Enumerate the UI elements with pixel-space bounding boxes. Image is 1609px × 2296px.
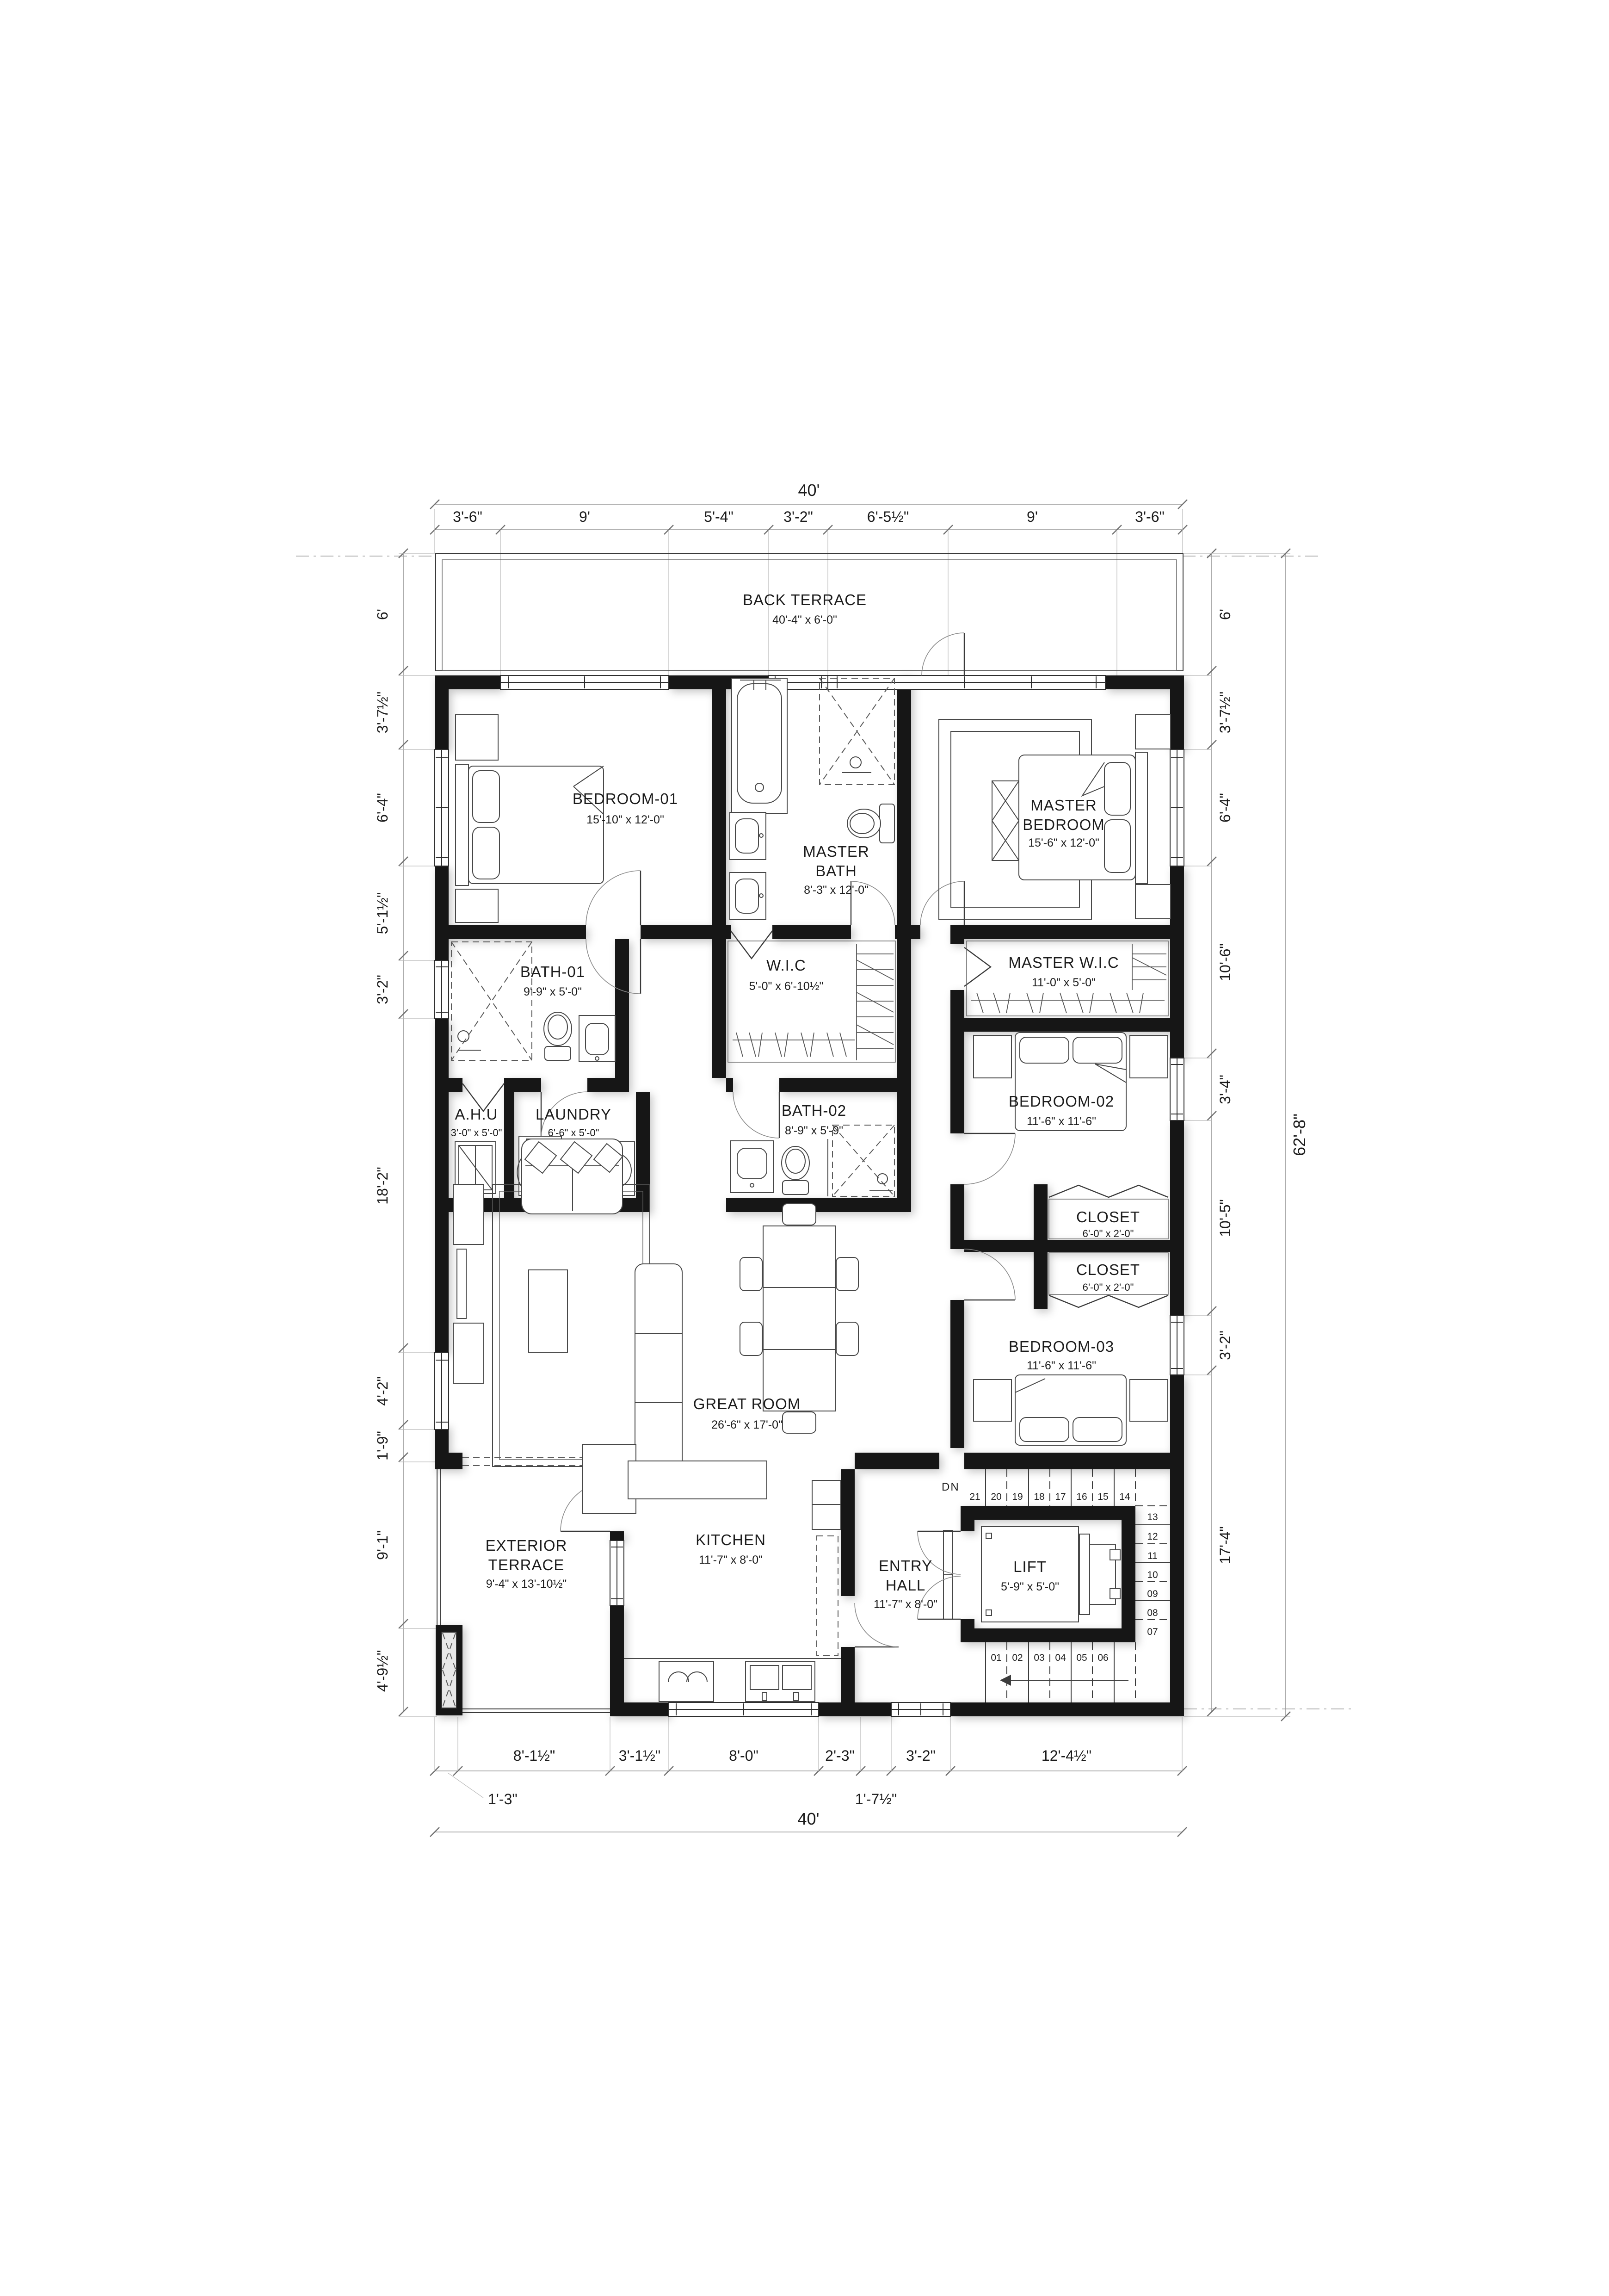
svg-text:LAUNDRY: LAUNDRY	[536, 1106, 611, 1123]
dim-bottom-overall: 40'	[798, 1809, 820, 1828]
dim-left-4: 3'-2"	[374, 975, 391, 1004]
window-bedroom01-left	[435, 749, 449, 866]
dim-bottom-1: 3'-1½"	[619, 1747, 660, 1764]
dim-left-2: 6'-4"	[374, 793, 391, 823]
dim-right-5: 10'-5"	[1217, 1199, 1233, 1237]
front-door	[891, 1702, 950, 1716]
svg-text:MASTER W.I.C: MASTER W.I.C	[1008, 954, 1119, 971]
dim-left-6: 4'-2"	[374, 1376, 391, 1406]
room-label-master-wic: MASTER W.I.C 11'-0" x 5'-0"	[1008, 954, 1119, 989]
room-label-bath02: BATH-02 8'-9" x 5'-9"	[782, 1102, 846, 1137]
svg-text:11'-7" x 8'-0": 11'-7" x 8'-0"	[874, 1598, 937, 1611]
svg-text:CLOSET: CLOSET	[1076, 1261, 1140, 1278]
door-bath01	[586, 939, 641, 994]
stair-num-04: 04	[1055, 1652, 1066, 1663]
stair-num-03: 03	[1034, 1652, 1044, 1663]
closet-top-bifold	[1049, 1185, 1168, 1197]
dim-bottom-4: 3'-2"	[906, 1747, 936, 1764]
bed-bedroom03	[974, 1375, 1168, 1445]
dim-bottom-3: 2'-3"	[825, 1747, 855, 1764]
svg-text:GREAT ROOM: GREAT ROOM	[693, 1395, 801, 1412]
stair-num-21: 21	[969, 1491, 980, 1502]
svg-text:11'-6" x 11'-6": 11'-6" x 11'-6"	[1027, 1115, 1096, 1128]
kitchen-upper-cabinets	[817, 1536, 838, 1655]
svg-text:CLOSET: CLOSET	[1076, 1208, 1140, 1225]
room-label-back-terrace: BACK TERRACE 40'-4" x 6'-0"	[743, 591, 867, 626]
bathtub-master	[732, 678, 787, 813]
stair-num-10: 10	[1147, 1570, 1158, 1580]
svg-text:BATH: BATH	[815, 862, 857, 879]
dim-bottom-leader-left: 1'-3"	[488, 1791, 518, 1807]
svg-text:6'-0" x 2'-0": 6'-0" x 2'-0"	[1083, 1228, 1134, 1239]
dim-right-overall: 62'-8"	[1290, 1114, 1309, 1156]
leader-line-left	[448, 1773, 483, 1798]
dim-left-9: 4'-9½"	[374, 1650, 391, 1692]
svg-text:5'-9" x 5'-0": 5'-9" x 5'-0"	[1001, 1580, 1059, 1593]
lift-car	[981, 1527, 1120, 1622]
stair-num-17: 17	[1055, 1491, 1066, 1502]
back-terrace-outline	[436, 553, 1183, 671]
svg-text:EXTERIOR: EXTERIOR	[486, 1537, 567, 1554]
dim-right-1: 3'-7½"	[1217, 692, 1233, 733]
dim-top-overall: 40'	[798, 481, 820, 500]
vanity-bath02	[731, 1141, 773, 1193]
dim-left-7: 1'-9"	[374, 1431, 391, 1461]
dim-bottom-5: 12'-4½"	[1042, 1747, 1091, 1764]
stair-num-18: 18	[1034, 1491, 1044, 1502]
window-greatroom-left	[435, 1353, 449, 1430]
dim-left-8: 9'-1"	[374, 1530, 391, 1560]
svg-text:BEDROOM-02: BEDROOM-02	[1009, 1093, 1114, 1110]
toilet-master	[847, 804, 894, 843]
room-label-exterior-terrace: EXTERIOR TERRACE 9'-4" x 13'-10½"	[486, 1537, 567, 1590]
svg-text:26'-6" x 17'-0": 26'-6" x 17'-0"	[711, 1418, 783, 1431]
svg-text:A.H.U: A.H.U	[455, 1106, 498, 1123]
svg-text:8'-3" x 12'-0": 8'-3" x 12'-0"	[804, 884, 869, 897]
toilet-bath02	[782, 1146, 809, 1194]
dim-top-6: 3'-6"	[1135, 508, 1165, 525]
stair-num-02: 02	[1012, 1652, 1023, 1663]
dim-right-2: 6'-4"	[1217, 793, 1233, 823]
kitchen-fixtures	[624, 1461, 841, 1702]
stair-num-11: 11	[1147, 1551, 1158, 1561]
planter-inner	[442, 1632, 456, 1708]
slider-master-bedroom-top	[828, 675, 1105, 689]
vanity-master-2	[730, 873, 766, 920]
window-kitchen-bottom	[669, 1702, 819, 1716]
room-label-master-bath: MASTER BATH 8'-3" x 12'-0"	[803, 843, 869, 897]
svg-text:KITCHEN: KITCHEN	[696, 1531, 766, 1548]
dim-right-3: 10'-6"	[1217, 943, 1233, 981]
room-label-entry-hall: ENTRY HALL 11'-7" x 8'-0"	[874, 1557, 937, 1611]
kitchen-sink	[746, 1662, 815, 1702]
room-label-ahu: A.H.U 3'-0" x 5'-0"	[451, 1106, 502, 1139]
ext-lines-left	[399, 553, 437, 1716]
svg-text:3'-0" x 5'-0": 3'-0" x 5'-0"	[451, 1127, 502, 1139]
svg-text:TERRACE: TERRACE	[488, 1556, 565, 1573]
kitchen-island	[628, 1461, 767, 1499]
stair-direction-arrow	[1000, 1675, 1011, 1686]
floor-plan-sheet: 40' 3'-6" 9' 5'-4" 3'-2" 6'-5½" 9' 3'-6"…	[0, 0, 1609, 2296]
svg-text:5'-0" x 6'-10½": 5'-0" x 6'-10½"	[749, 980, 824, 993]
dim-bottom-leader-mid: 1'-7½"	[855, 1791, 897, 1807]
room-label-bedroom03: BEDROOM-03 11'-6" x 11'-6"	[1009, 1338, 1114, 1372]
svg-text:6'-0" x 2'-0": 6'-0" x 2'-0"	[1083, 1281, 1134, 1293]
dim-top-5: 9'	[1027, 508, 1038, 525]
shower-master	[820, 678, 894, 785]
door-bedroom02	[964, 1133, 1015, 1184]
svg-text:LIFT: LIFT	[1013, 1558, 1047, 1575]
svg-text:8'-9" x 5'-9": 8'-9" x 5'-9"	[785, 1124, 843, 1137]
dining-table	[763, 1226, 835, 1411]
window-bedroom02-right	[1170, 1058, 1184, 1120]
svg-text:MASTER: MASTER	[803, 843, 869, 860]
room-label-kitchen: KITCHEN 11'-7" x 8'-0"	[696, 1531, 766, 1566]
stair-num-05: 05	[1076, 1652, 1087, 1663]
dim-right-6: 3'-2"	[1217, 1331, 1233, 1360]
tv-panel	[457, 1249, 466, 1318]
svg-text:BATH-01: BATH-01	[520, 963, 585, 980]
wardrobe-wic	[728, 941, 895, 1062]
svg-text:11'-7" x 8'-0": 11'-7" x 8'-0"	[699, 1553, 763, 1566]
coffee-table	[529, 1270, 567, 1352]
dim-top-4: 6'-5½"	[867, 508, 909, 525]
dim-bottom-2: 8'-0"	[729, 1747, 758, 1764]
stair-num-01: 01	[991, 1652, 1001, 1663]
stair-num-14: 14	[1119, 1491, 1130, 1502]
floor-plan: 40' 3'-6" 9' 5'-4" 3'-2" 6'-5½" 9' 3'-6"…	[0, 0, 1609, 2296]
dim-top-0: 3'-6"	[453, 508, 482, 525]
exterior-terrace-left-edge	[437, 1462, 441, 1625]
svg-text:W.I.C: W.I.C	[766, 957, 806, 974]
room-label-bath01: BATH-01 9'-9" x 5'-0"	[520, 963, 585, 998]
dim-right-4: 3'-4"	[1217, 1075, 1233, 1104]
stair-num-08: 08	[1147, 1608, 1158, 1618]
door-wic-bifold	[731, 931, 772, 959]
stair-num-09: 09	[1147, 1589, 1158, 1599]
dim-bottom-0: 8'-1½"	[513, 1747, 555, 1764]
dim-right-0: 6'	[1217, 609, 1233, 620]
chaise	[635, 1264, 682, 1473]
exterior-terrace-bottom-edge	[461, 1709, 610, 1713]
window-kitchen-terrace	[610, 1541, 624, 1605]
room-label-laundry: LAUNDRY 6'-6" x 5'-0"	[536, 1106, 611, 1139]
stair-num-13: 13	[1147, 1512, 1158, 1522]
ext-lines-right	[1184, 553, 1290, 1716]
svg-text:15'-6" x 12'-0": 15'-6" x 12'-0"	[1028, 836, 1099, 849]
stair-num-06: 06	[1097, 1652, 1108, 1663]
door-master-bedroom	[920, 881, 964, 925]
door-bath02	[733, 1092, 779, 1138]
svg-text:MASTER: MASTER	[1030, 797, 1097, 814]
vanity-bath01	[579, 1015, 615, 1062]
window-master-bedroom-right	[1170, 749, 1184, 866]
svg-text:11'-6" x 11'-6": 11'-6" x 11'-6"	[1027, 1359, 1096, 1372]
stair-num-12: 12	[1147, 1531, 1158, 1542]
slider-greatroom-terrace	[462, 1457, 601, 1466]
svg-text:BEDROOM: BEDROOM	[1023, 816, 1105, 833]
closet-bottom-bifold	[1049, 1295, 1168, 1307]
dim-left-0: 6'	[374, 609, 391, 620]
dim-right-7: 17'-4"	[1217, 1526, 1233, 1564]
svg-text:40'-4" x 6'-0": 40'-4" x 6'-0"	[772, 613, 837, 626]
stair-num-16: 16	[1076, 1491, 1087, 1502]
room-label-closet-bottom: CLOSET 6'-0" x 2'-0"	[1076, 1261, 1140, 1293]
room-label-closet-top: CLOSET 6'-0" x 2'-0"	[1076, 1208, 1140, 1239]
door-terrace-master	[922, 633, 964, 675]
dim-left-3: 5'-1½"	[374, 892, 391, 934]
svg-text:BACK TERRACE: BACK TERRACE	[743, 591, 867, 608]
svg-text:9'-9" x 5'-0": 9'-9" x 5'-0"	[524, 985, 582, 998]
dim-top-2: 5'-4"	[704, 508, 734, 525]
window-bedroom03-right	[1170, 1316, 1184, 1375]
svg-text:ENTRY: ENTRY	[879, 1557, 932, 1574]
stair-num-19: 19	[1012, 1491, 1023, 1502]
window-bath01-left	[435, 960, 449, 1019]
kitchen-range	[659, 1662, 714, 1702]
bed-bedroom01	[456, 715, 604, 922]
door-bedroom03	[964, 1249, 1015, 1300]
window-bedroom01-top	[500, 675, 669, 689]
stair-num-07: 07	[1147, 1627, 1158, 1637]
room-label-wic: W.I.C 5'-0" x 6'-10½"	[749, 957, 824, 993]
toilet-bath01	[544, 1012, 572, 1060]
door-master-wic-bifold	[964, 947, 991, 986]
svg-text:9'-4" x 13'-10½": 9'-4" x 13'-10½"	[486, 1578, 567, 1590]
svg-text:BEDROOM-03: BEDROOM-03	[1009, 1338, 1114, 1355]
vanity-master-1	[730, 812, 766, 860]
room-label-master-bedroom: MASTER BEDROOM 15'-6" x 12'-0"	[1023, 797, 1105, 849]
dim-top-3: 3'-2"	[783, 508, 813, 525]
svg-text:6'-6" x 5'-0": 6'-6" x 5'-0"	[548, 1127, 599, 1139]
stair-num-20: 20	[991, 1491, 1001, 1502]
svg-text:15'-10" x 12'-0": 15'-10" x 12'-0"	[586, 813, 664, 826]
svg-text:HALL: HALL	[886, 1577, 926, 1594]
stair-dn-label: DN	[942, 1481, 960, 1493]
svg-text:BATH-02: BATH-02	[782, 1102, 846, 1119]
dim-left-5: 18'-2"	[374, 1167, 391, 1205]
shower-bath01	[451, 942, 532, 1060]
svg-text:11'-0" x 5'-0": 11'-0" x 5'-0"	[1032, 976, 1096, 989]
stair-num-15: 15	[1097, 1491, 1108, 1502]
dim-top-1: 9'	[579, 508, 590, 525]
dim-left-1: 3'-7½"	[374, 692, 391, 733]
svg-text:BEDROOM-01: BEDROOM-01	[573, 790, 678, 807]
